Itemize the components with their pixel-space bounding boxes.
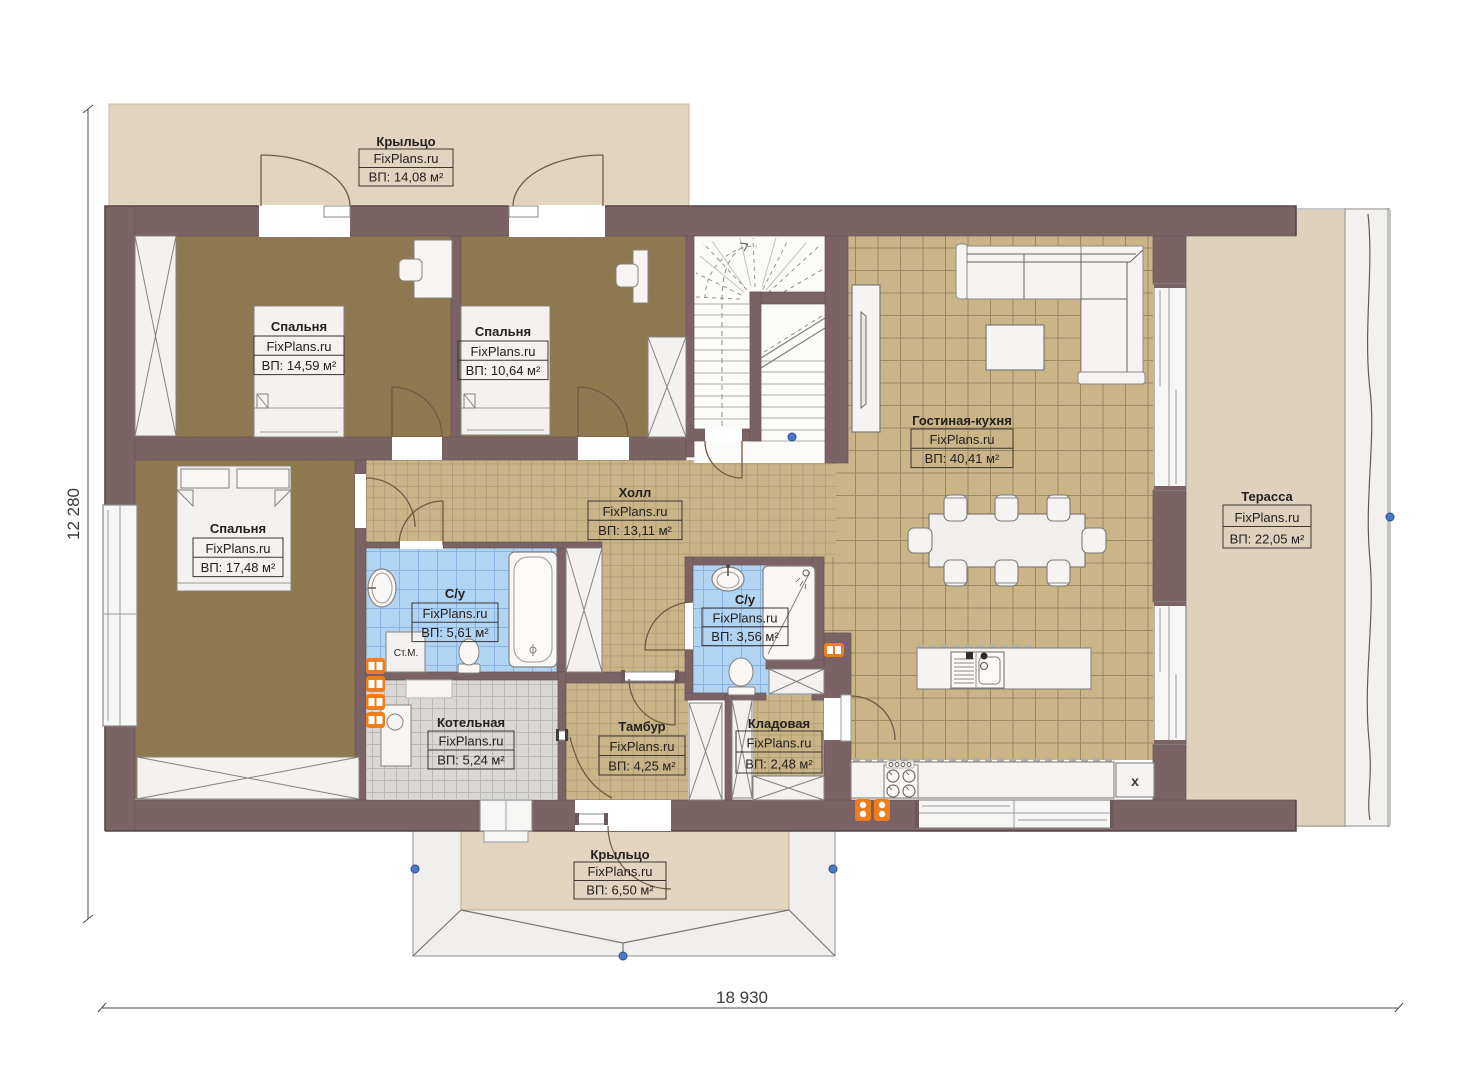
svg-text:Спальня: Спальня <box>210 521 266 536</box>
svg-text:Терасса: Терасса <box>1241 489 1293 504</box>
svg-text:ВП: 5,61 м²: ВП: 5,61 м² <box>421 625 489 640</box>
svg-text:Спальня: Спальня <box>271 319 327 334</box>
svg-text:ВП: 4,25 м²: ВП: 4,25 м² <box>608 759 676 774</box>
svg-text:ВП: 3,56 м²: ВП: 3,56 м² <box>711 629 779 644</box>
svg-text:x: x <box>1131 773 1139 789</box>
svg-text:С/у: С/у <box>445 586 466 601</box>
svg-text:Гостиная-кухня: Гостиная-кухня <box>912 413 1012 428</box>
svg-text:FixPlans.ru: FixPlans.ru <box>205 541 270 556</box>
svg-text:ВП: 13,11 м²: ВП: 13,11 м² <box>598 523 672 538</box>
svg-text:FixPlans.ru: FixPlans.ru <box>712 610 777 625</box>
svg-text:FixPlans.ru: FixPlans.ru <box>587 864 652 879</box>
svg-text:ВП: 14,59 м²: ВП: 14,59 м² <box>262 358 337 373</box>
svg-text:Тамбур: Тамбур <box>618 719 665 734</box>
svg-text:FixPlans.ru: FixPlans.ru <box>1234 510 1299 525</box>
svg-text:FixPlans.ru: FixPlans.ru <box>929 432 994 447</box>
svg-text:FixPlans.ru: FixPlans.ru <box>609 739 674 754</box>
svg-text:Холл: Холл <box>619 485 652 500</box>
svg-text:ВП: 22,05 м²: ВП: 22,05 м² <box>1230 532 1305 547</box>
svg-text:FixPlans.ru: FixPlans.ru <box>746 736 811 751</box>
svg-text:FixPlans.ru: FixPlans.ru <box>438 734 503 749</box>
svg-text:ВП: 2,48 м²: ВП: 2,48 м² <box>745 757 813 772</box>
svg-text:ВП: 5,24 м²: ВП: 5,24 м² <box>437 753 505 768</box>
svg-text:Крыльцо: Крыльцо <box>376 134 435 149</box>
svg-text:12 280: 12 280 <box>64 488 83 540</box>
svg-text:ВП: 17,48 м²: ВП: 17,48 м² <box>201 560 276 575</box>
svg-text:ВП: 10,64 м²: ВП: 10,64 м² <box>466 363 541 378</box>
svg-text:FixPlans.ru: FixPlans.ru <box>470 344 535 359</box>
svg-text:С/у: С/у <box>735 592 756 607</box>
svg-text:ВП: 14,08 м²: ВП: 14,08 м² <box>369 170 444 185</box>
svg-text:Спальня: Спальня <box>475 324 531 339</box>
svg-text:FixPlans.ru: FixPlans.ru <box>422 606 487 621</box>
svg-text:Ст.М.: Ст.М. <box>394 648 419 659</box>
svg-text:Кладовая: Кладовая <box>748 716 810 731</box>
svg-text:Крыльцо: Крыльцо <box>590 847 649 862</box>
svg-text:18 930: 18 930 <box>716 988 768 1007</box>
svg-text:FixPlans.ru: FixPlans.ru <box>373 151 438 166</box>
svg-text:FixPlans.ru: FixPlans.ru <box>266 339 331 354</box>
svg-text:ВП: 6,50 м²: ВП: 6,50 м² <box>586 883 654 898</box>
svg-text:ВП: 40,41 м²: ВП: 40,41 м² <box>925 451 1000 466</box>
svg-text:Котельная: Котельная <box>437 715 505 730</box>
svg-text:FixPlans.ru: FixPlans.ru <box>602 504 667 519</box>
